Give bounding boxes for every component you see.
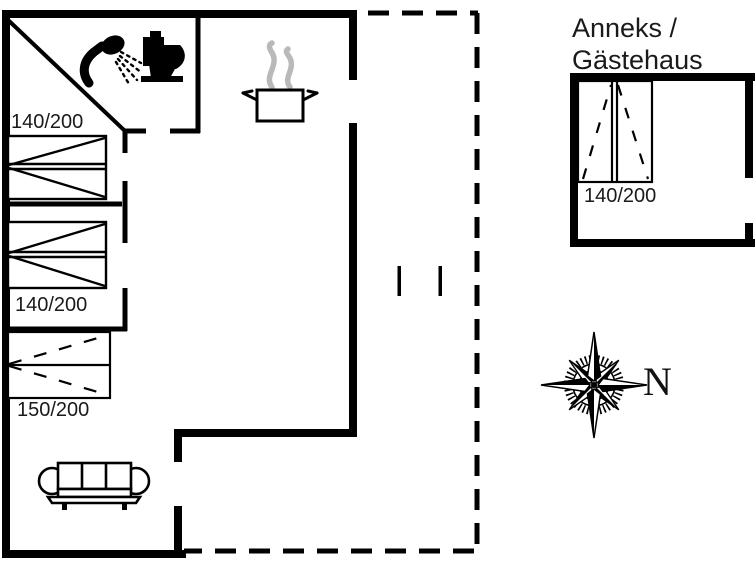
terrace-opening-ticks <box>399 266 440 296</box>
floorplan-canvas <box>0 0 755 566</box>
compass-north-label: N <box>643 358 672 405</box>
cooking-pot-icon <box>243 90 317 121</box>
annex-title: Anneks / Gästehaus <box>572 12 703 76</box>
compass-rose-icon <box>541 332 647 438</box>
bed-foldout-3 <box>8 332 110 398</box>
annex-bed-foldout <box>578 81 652 182</box>
bed2-dimension-label: 140/200 <box>15 294 87 317</box>
toilet-icon <box>141 31 185 82</box>
bed-double-2 <box>8 222 106 288</box>
steam-icon <box>269 43 291 87</box>
sofa-icon <box>39 463 149 510</box>
bed3-dimension-label: 150/200 <box>17 399 89 422</box>
terrace-dashed-boundary <box>184 13 478 551</box>
shower-icon <box>84 32 142 84</box>
bed1-dimension-label: 140/200 <box>11 111 83 134</box>
floorplan-page: 140/200 140/200 150/200 140/200 Anneks /… <box>0 0 755 566</box>
annex-title-line1: Anneks / <box>572 12 703 44</box>
annex-title-line2: Gästehaus <box>572 44 703 76</box>
annex-bed-dimension-label: 140/200 <box>584 185 656 208</box>
bed-double-1 <box>8 136 106 199</box>
